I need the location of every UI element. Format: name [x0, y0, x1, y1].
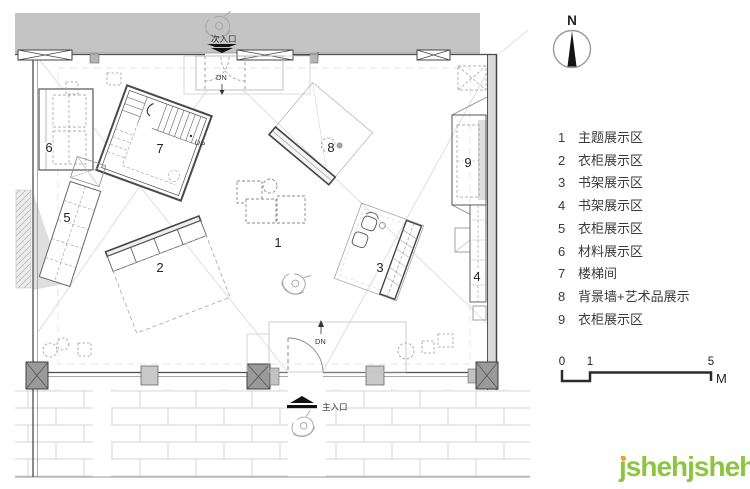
legend: 1主题展示区 2衣柜展示区 3书架展示区 4书架展示区 5衣柜展示区 6材料展示… — [558, 127, 690, 331]
legend-item-num: 2 — [558, 150, 573, 173]
secondary-entrance-label: 次入口 — [211, 34, 237, 44]
zone-1-theme-display — [237, 179, 305, 223]
zone-label-9: 9 — [464, 155, 471, 170]
legend-item-label: 背景墙+艺术品展示 — [578, 286, 690, 309]
dn-bottom-label: DN — [315, 337, 326, 346]
legend-item: 1主题展示区 — [558, 127, 690, 150]
legend-item-num: 9 — [558, 309, 573, 332]
pilaster — [141, 366, 158, 385]
zone-label-7: 7 — [156, 141, 163, 156]
legend-item-label: 楼梯间 — [578, 263, 617, 286]
zone-label-2: 2 — [156, 260, 163, 275]
column — [247, 364, 279, 389]
main-entrance-label: 主入口 — [322, 402, 348, 412]
legend-item-label: 衣柜展示区 — [578, 218, 643, 241]
north-arrow-icon: N — [554, 13, 591, 68]
dn-top-label: DN — [216, 73, 227, 82]
zone-label-5: 5 — [63, 210, 70, 225]
legend-item-num: 5 — [558, 218, 573, 241]
column — [26, 362, 48, 389]
mullion — [310, 54, 318, 63]
columns — [26, 362, 498, 389]
right-wall — [487, 54, 497, 390]
legend-item-label: 材料展示区 — [578, 241, 643, 264]
legend-item-label: 书架展示区 — [578, 195, 643, 218]
window-icon — [417, 50, 450, 60]
zone-2-wardrobe-display — [106, 216, 231, 333]
chair-icon — [360, 210, 379, 231]
legend-item: 3书架展示区 — [558, 172, 690, 195]
logo-j-dot — [621, 456, 626, 461]
exterior-brick-paving — [15, 389, 530, 477]
legend-item: 5衣柜展示区 — [558, 218, 690, 241]
scale-tick-1: 1 — [587, 356, 593, 368]
zone-label-3: 3 — [376, 260, 383, 275]
zone-6-material-display — [39, 89, 93, 170]
legend-item-label: 书架展示区 — [578, 172, 643, 195]
legend-item-label: 主题展示区 — [578, 127, 643, 150]
legend-item: 4书架展示区 — [558, 195, 690, 218]
logo-name: jshehjsheh — [619, 453, 750, 481]
zone-label-1: 1 — [274, 235, 281, 250]
site-logo: jshehjsheh 冀设汇 .com — [619, 453, 750, 481]
top-gray-band — [15, 13, 480, 53]
pilaster — [366, 366, 384, 385]
scale-tick-0: 0 — [559, 356, 565, 368]
chair-icon — [351, 231, 369, 249]
north-label: N — [567, 13, 577, 28]
legend-item-label: 衣柜展示区 — [578, 309, 643, 332]
zone-3-bookshelf-display — [334, 203, 423, 301]
legend-item: 8背景墙+艺术品展示 — [558, 286, 690, 309]
legend-item-num: 3 — [558, 172, 573, 195]
legend-item-num: 8 — [558, 286, 573, 309]
zone-8-background-wall — [269, 83, 372, 185]
floor-plan-page: UP — [0, 0, 750, 489]
legend-item: 9衣柜展示区 — [558, 309, 690, 332]
legend-item: 7楼梯间 — [558, 263, 690, 286]
scale-tick-5: 5 — [708, 356, 714, 368]
legend-item: 6材料展示区 — [558, 241, 690, 264]
window-icon — [18, 50, 72, 60]
scale-unit: M — [716, 371, 727, 386]
legend-item-num: 7 — [558, 263, 573, 286]
zone-label-6: 6 — [45, 140, 52, 155]
column — [468, 362, 498, 389]
legend-item-num: 6 — [558, 241, 573, 264]
person-sketch — [279, 265, 311, 298]
legend-item-label: 衣柜展示区 — [578, 150, 643, 173]
zone-5-wardrobe-display — [38, 156, 108, 286]
legend-item-num: 4 — [558, 195, 573, 218]
zone-4-bookshelf-display — [470, 205, 486, 320]
scale-bar: 0 1 5 M — [559, 356, 727, 386]
zone-label-8: 8 — [327, 140, 334, 155]
legend-item-num: 1 — [558, 127, 573, 150]
zone-label-4: 4 — [473, 269, 480, 284]
stair-up-dot — [190, 135, 192, 137]
legend-item: 2衣柜展示区 — [558, 150, 690, 173]
mullion — [90, 54, 99, 63]
